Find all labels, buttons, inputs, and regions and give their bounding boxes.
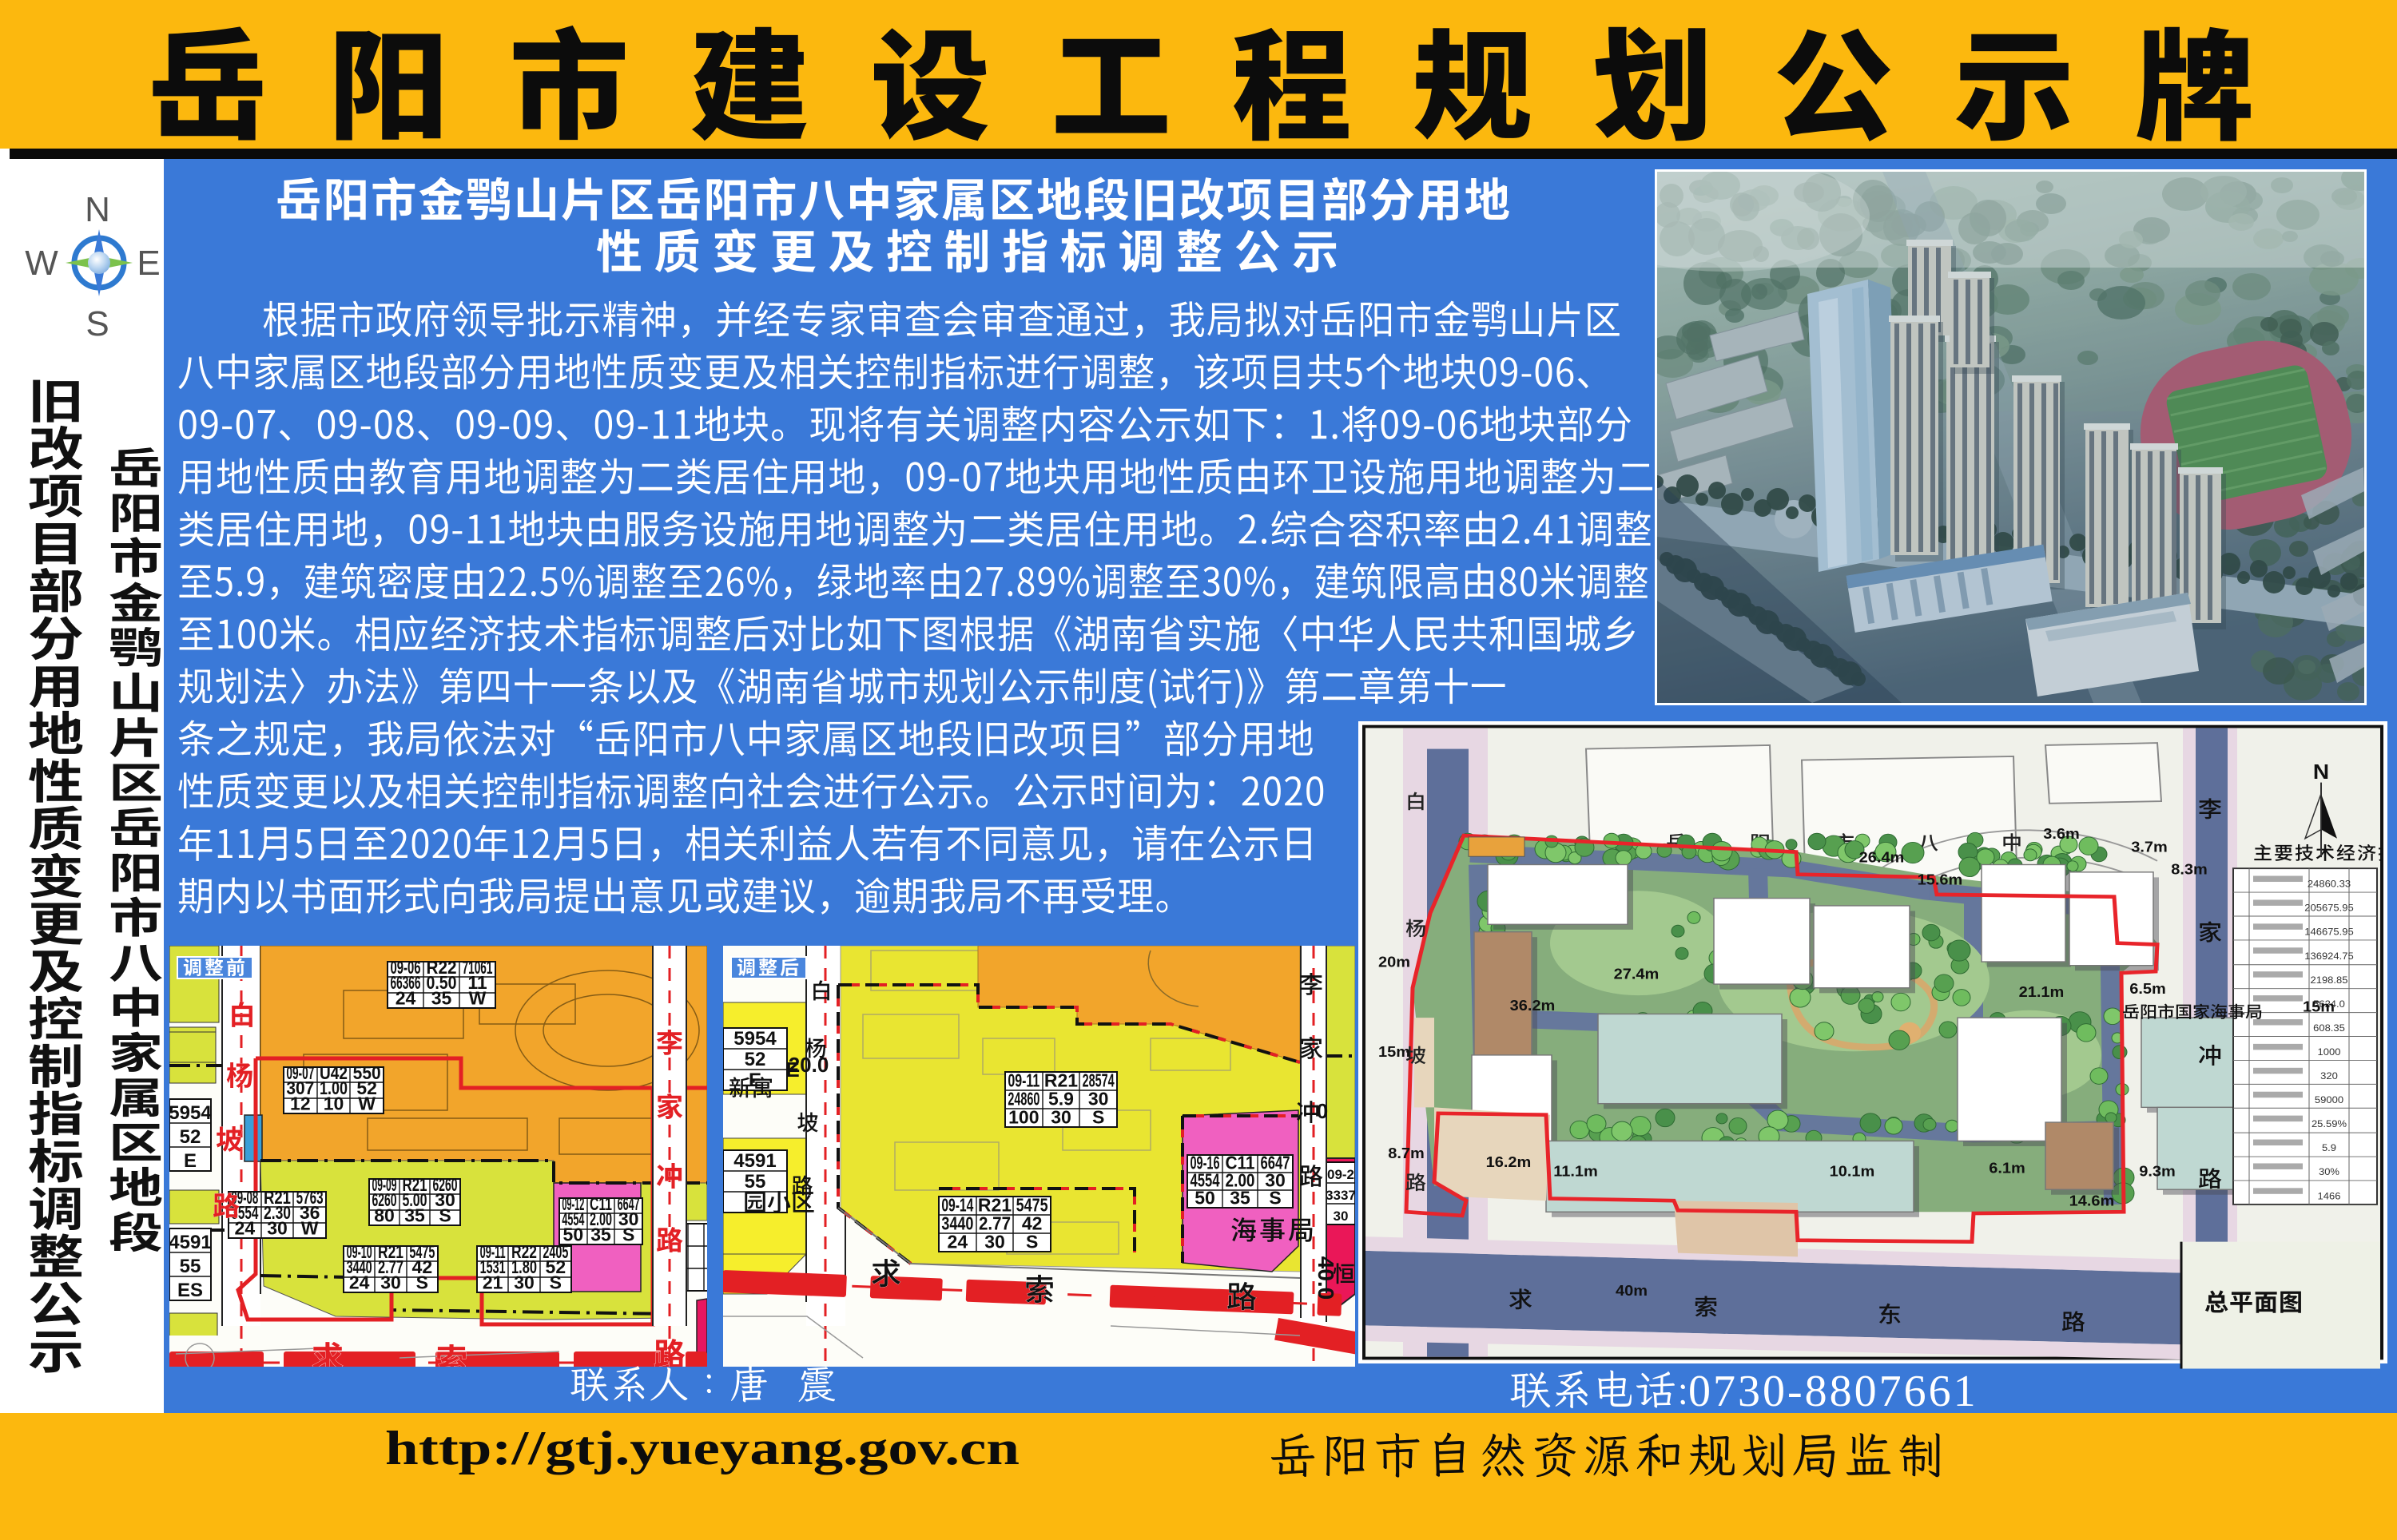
svg-text:608.35: 608.35 [2313,1022,2345,1034]
svg-text:W: W [25,244,58,283]
svg-text:W: W [358,1093,376,1113]
svg-text:6.1m: 6.1m [1989,1160,2025,1177]
svg-text:3.7m: 3.7m [2131,839,2168,855]
svg-text:S: S [85,304,109,343]
svg-text:5.9: 5.9 [2322,1143,2336,1154]
svg-text:N: N [85,190,110,229]
svg-text:S: S [1026,1232,1038,1252]
svg-text:20m: 20m [1378,954,1410,970]
svg-text:16.2m: 16.2m [1486,1154,1532,1171]
svg-text:http://gtj.yueyang.gov.cn: http://gtj.yueyang.gov.cn [385,1422,1020,1475]
svg-text:30: 30 [984,1232,1005,1252]
svg-text:24: 24 [396,987,416,1008]
svg-text:09-2: 09-2 [1327,1167,1354,1182]
svg-text:35: 35 [1230,1188,1250,1209]
svg-text:27.4m: 27.4m [1614,966,1660,982]
svg-text:21: 21 [483,1272,503,1292]
svg-text:59000: 59000 [2315,1094,2343,1105]
svg-text:S: S [550,1272,562,1292]
svg-text:S: S [622,1224,634,1244]
svg-text:30: 30 [1334,1209,1349,1224]
svg-text:6.5m: 6.5m [2129,981,2166,998]
svg-text:0: 0 [1317,1099,1328,1123]
svg-text:14.6m: 14.6m [2069,1193,2115,1209]
svg-text:S: S [1269,1188,1281,1209]
svg-text:5954: 5954 [733,1028,777,1050]
svg-text:15m: 15m [2303,998,2335,1015]
svg-text:3337: 3337 [1326,1188,1356,1203]
svg-text:25.59%: 25.59% [2312,1118,2347,1129]
svg-text:10.1m: 10.1m [1830,1163,1875,1180]
svg-text:55: 55 [180,1256,201,1277]
svg-text:52: 52 [180,1126,201,1148]
svg-text:30: 30 [514,1272,535,1292]
svg-text:5954: 5954 [169,1102,212,1124]
svg-text:30: 30 [1051,1107,1071,1128]
svg-text:30: 30 [380,1272,401,1292]
svg-text:24: 24 [235,1217,256,1238]
svg-text:4591: 4591 [733,1150,776,1172]
svg-text:100: 100 [1008,1107,1039,1128]
svg-text:E: E [184,1150,197,1172]
svg-text:4591: 4591 [169,1232,211,1253]
svg-text:9.3m: 9.3m [2139,1163,2176,1180]
svg-text:0730-8807661: 0730-8807661 [1688,1367,1978,1416]
svg-text:136924.75: 136924.75 [2304,951,2353,962]
svg-text:1466: 1466 [2318,1191,2341,1202]
svg-text:12: 12 [290,1093,311,1113]
svg-text:50: 50 [1195,1188,1215,1209]
svg-text:S: S [416,1272,428,1292]
svg-text:35: 35 [590,1224,611,1244]
svg-text:26.4m: 26.4m [1859,849,1905,866]
svg-text:15m: 15m [1378,1043,1410,1060]
svg-text:36.2m: 36.2m [1510,997,1556,1014]
svg-text:W: W [469,987,487,1008]
svg-text:55: 55 [745,1171,766,1193]
svg-text:30%: 30% [2319,1167,2339,1178]
svg-text:11.1m: 11.1m [1553,1163,1598,1180]
svg-text:2198.85: 2198.85 [2311,974,2348,986]
svg-text:21.1m: 21.1m [2019,984,2065,1001]
svg-text:10: 10 [324,1093,344,1113]
svg-text:320: 320 [2320,1070,2338,1082]
svg-text:24860.33: 24860.33 [2308,879,2351,890]
svg-text:N: N [2313,760,2329,784]
svg-text:30: 30 [267,1217,288,1238]
svg-text:24: 24 [349,1272,370,1292]
svg-text:8.3m: 8.3m [2171,861,2208,878]
svg-text:1000: 1000 [2318,1046,2341,1058]
svg-text:50: 50 [563,1224,584,1244]
svg-text:E: E [137,244,160,283]
svg-text:80: 80 [374,1205,395,1225]
svg-text:35: 35 [404,1205,425,1225]
svg-text:8.7m: 8.7m [1388,1145,1425,1161]
svg-text:146675.95: 146675.95 [2304,927,2353,938]
svg-text:S: S [1092,1107,1104,1128]
svg-text:205675.95: 205675.95 [2304,903,2353,914]
svg-text:24: 24 [948,1232,968,1252]
svg-text:ES: ES [177,1280,203,1301]
svg-text:3.6m: 3.6m [2043,825,2080,842]
svg-text:35: 35 [431,987,452,1008]
svg-text:S: S [439,1205,451,1225]
svg-text:52: 52 [745,1049,766,1070]
svg-text:40m: 40m [1616,1283,1648,1300]
svg-text:W: W [301,1217,319,1238]
svg-text:40.0: 40.0 [1314,1256,1338,1300]
svg-text:15.6m: 15.6m [1918,871,1963,888]
